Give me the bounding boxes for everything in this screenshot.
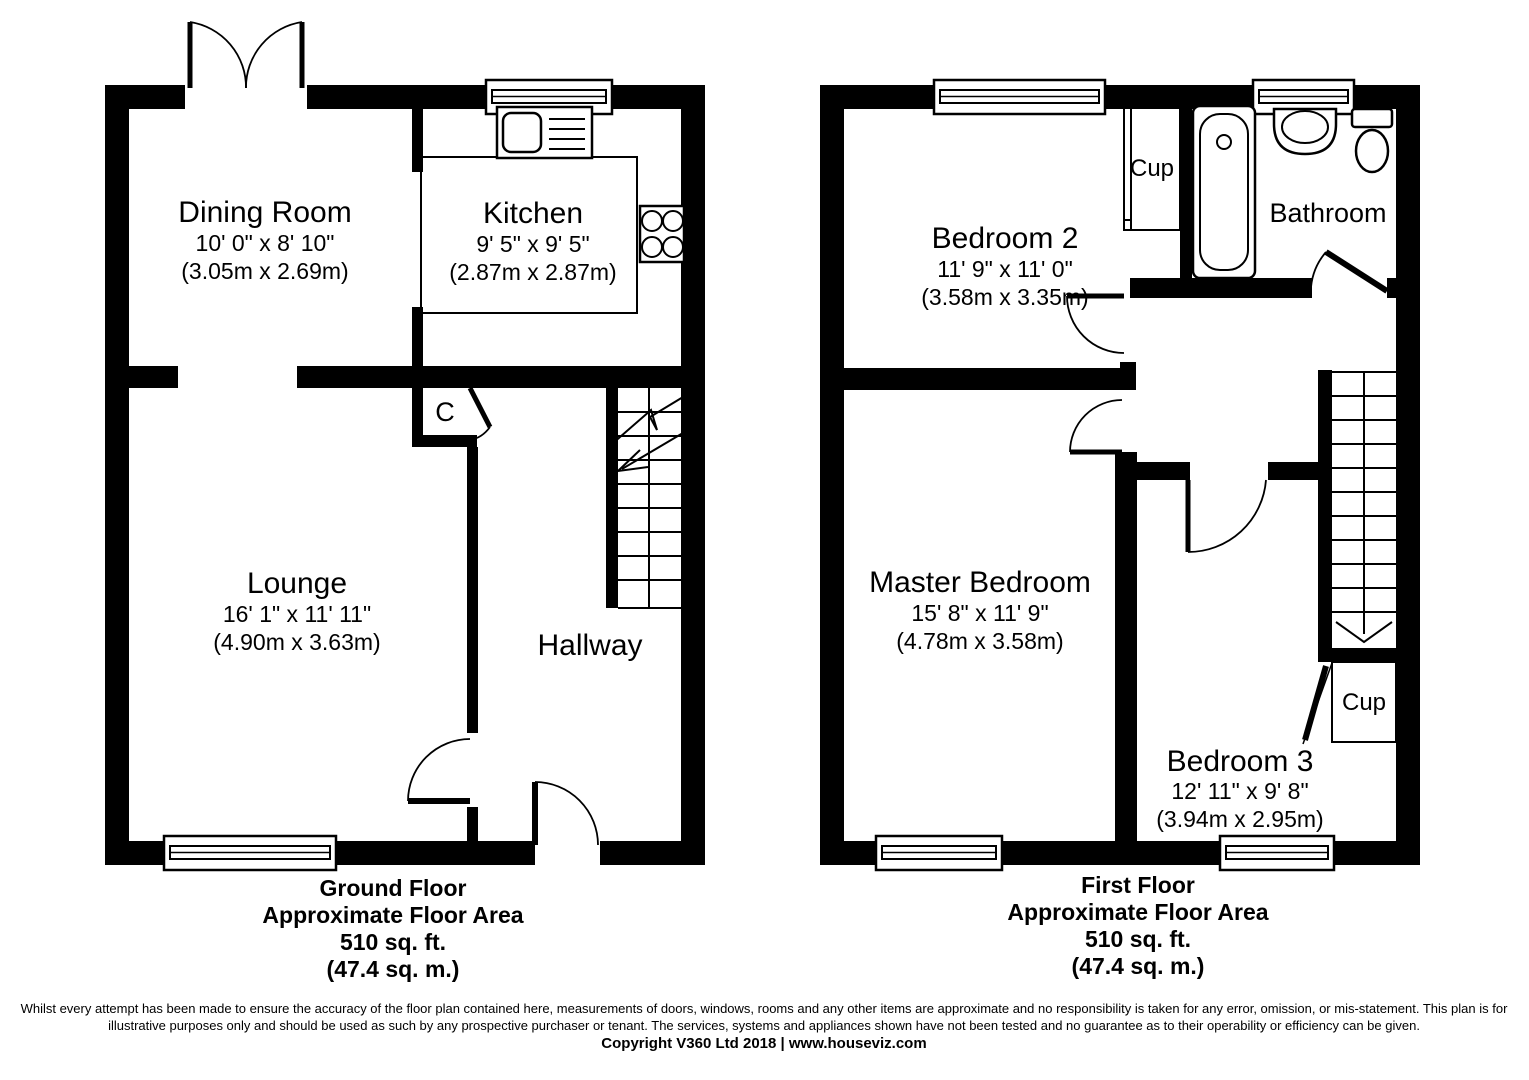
wall <box>467 447 478 733</box>
wall <box>1396 85 1420 865</box>
disclaimer-line1: Whilst every attempt has been made to en… <box>21 1001 1508 1016</box>
bedroom2-window <box>934 80 1105 114</box>
caption-area-imperial: 510 sq. ft. <box>340 929 446 955</box>
hallway-label: Hallway <box>537 629 642 662</box>
staircase-first <box>1332 372 1396 642</box>
hob <box>640 206 684 262</box>
master-bedroom-size-imperial: 15' 8" x 11' 9" <box>911 600 1048 626</box>
french-doors <box>190 22 302 88</box>
wall <box>1115 452 1137 841</box>
ground-floor-plan: Dining Room 10' 0" x 8' 10" (3.05m x 2.6… <box>105 22 705 982</box>
floorplan-page: Dining Room 10' 0" x 8' 10" (3.05m x 2.6… <box>0 0 1529 1080</box>
disclaimer-line2: illustrative purposes only and should be… <box>108 1018 1420 1033</box>
copyright-line: Copyright V360 Ltd 2018 | www.houseviz.c… <box>601 1035 926 1052</box>
wall <box>412 307 423 368</box>
kitchen-size-metric: (2.87m x 2.87m) <box>449 259 616 285</box>
wall <box>606 388 618 608</box>
first-floor-caption: First Floor Approximate Floor Area 510 s… <box>1007 872 1268 979</box>
kitchen-sink <box>497 107 592 158</box>
door-swing-arc <box>1188 480 1266 552</box>
caption-subtitle: Approximate Floor Area <box>262 902 523 928</box>
dining-room-label: Dining Room <box>178 196 351 229</box>
kitchen-label: Kitchen <box>483 197 583 230</box>
lounge-window <box>164 836 336 870</box>
bedroom2-label: Bedroom 2 <box>932 222 1079 255</box>
master-bedroom-window <box>876 836 1002 870</box>
footer: Whilst every attempt has been made to en… <box>21 1001 1508 1052</box>
caption-area-metric: (47.4 sq. m.) <box>327 956 460 982</box>
ground-floor-caption: Ground Floor Approximate Floor Area 510 … <box>262 875 523 982</box>
wall <box>681 85 705 865</box>
wall <box>844 368 1120 390</box>
door-swing-arc <box>190 22 246 88</box>
caption-area-imperial: 510 sq. ft. <box>1085 926 1191 952</box>
master-bedroom-door <box>1070 400 1122 452</box>
caption-title: Ground Floor <box>320 875 467 901</box>
wall <box>1387 278 1396 298</box>
staircase-ground <box>612 388 688 608</box>
caption-subtitle: Approximate Floor Area <box>1007 899 1268 925</box>
wall <box>1180 109 1192 283</box>
wall <box>600 841 705 865</box>
door-swing-arc <box>535 782 598 845</box>
toilet <box>1352 109 1392 172</box>
cupboard-door <box>470 388 490 440</box>
bedroom3-label: Bedroom 3 <box>1167 745 1314 778</box>
door-swing-arc <box>408 739 470 801</box>
lounge-size-metric: (4.90m x 3.63m) <box>213 629 380 655</box>
bathroom-sink <box>1274 109 1336 154</box>
wall <box>412 435 477 447</box>
bedroom3-window <box>1220 836 1334 870</box>
wall <box>129 366 178 388</box>
door-leaf <box>470 388 490 427</box>
dining-room-size-imperial: 10' 0" x 8' 10" <box>196 230 335 256</box>
first-floor-plan: Bedroom 2 11' 9" x 11' 0" (3.58m x 3.35m… <box>820 80 1420 979</box>
wall <box>1137 462 1190 480</box>
caption-area-metric: (47.4 sq. m.) <box>1072 953 1205 979</box>
cupboard-top-label: Cup <box>1130 155 1174 182</box>
dining-room-size-metric: (3.05m x 2.69m) <box>181 258 348 284</box>
door-swing-arc <box>1311 252 1326 287</box>
lounge-label: Lounge <box>247 567 347 600</box>
bedroom2-size-metric: (3.58m x 3.35m) <box>921 284 1088 310</box>
floorplan-drawing: Dining Room 10' 0" x 8' 10" (3.05m x 2.6… <box>0 0 1529 1080</box>
wall <box>820 85 844 865</box>
lounge-door <box>408 739 470 801</box>
wall <box>467 807 478 841</box>
bedroom2-size-imperial: 11' 9" x 11' 0" <box>937 256 1073 282</box>
wall <box>1318 370 1332 660</box>
bathroom-label: Bathroom <box>1269 198 1386 228</box>
front-door <box>535 782 598 845</box>
master-bedroom-label: Master Bedroom <box>869 566 1091 599</box>
wall <box>1130 278 1312 298</box>
cupboard-label: C <box>435 397 455 427</box>
wall <box>412 388 423 435</box>
wall <box>297 366 681 388</box>
bedroom3-size-imperial: 12' 11" x 9' 8" <box>1171 778 1308 804</box>
bathtub <box>1193 106 1255 278</box>
door-swing-arc <box>1070 400 1122 452</box>
lounge-size-imperial: 16' 1" x 11' 11" <box>223 601 371 627</box>
wall <box>1120 362 1136 390</box>
caption-title: First Floor <box>1081 872 1195 898</box>
bedroom3-size-metric: (3.94m x 2.95m) <box>1156 806 1323 832</box>
bathroom-door <box>1311 252 1387 291</box>
door-swing-arc <box>246 22 302 88</box>
wall <box>105 85 129 865</box>
master-bedroom-size-metric: (4.78m x 3.58m) <box>896 628 1063 654</box>
bedroom3-door <box>1188 480 1266 552</box>
cupboard-bottom-label: Cup <box>1342 689 1386 716</box>
wall <box>1318 648 1396 662</box>
kitchen-size-imperial: 9' 5" x 9' 5" <box>476 231 589 257</box>
door-leaf <box>1326 252 1387 291</box>
